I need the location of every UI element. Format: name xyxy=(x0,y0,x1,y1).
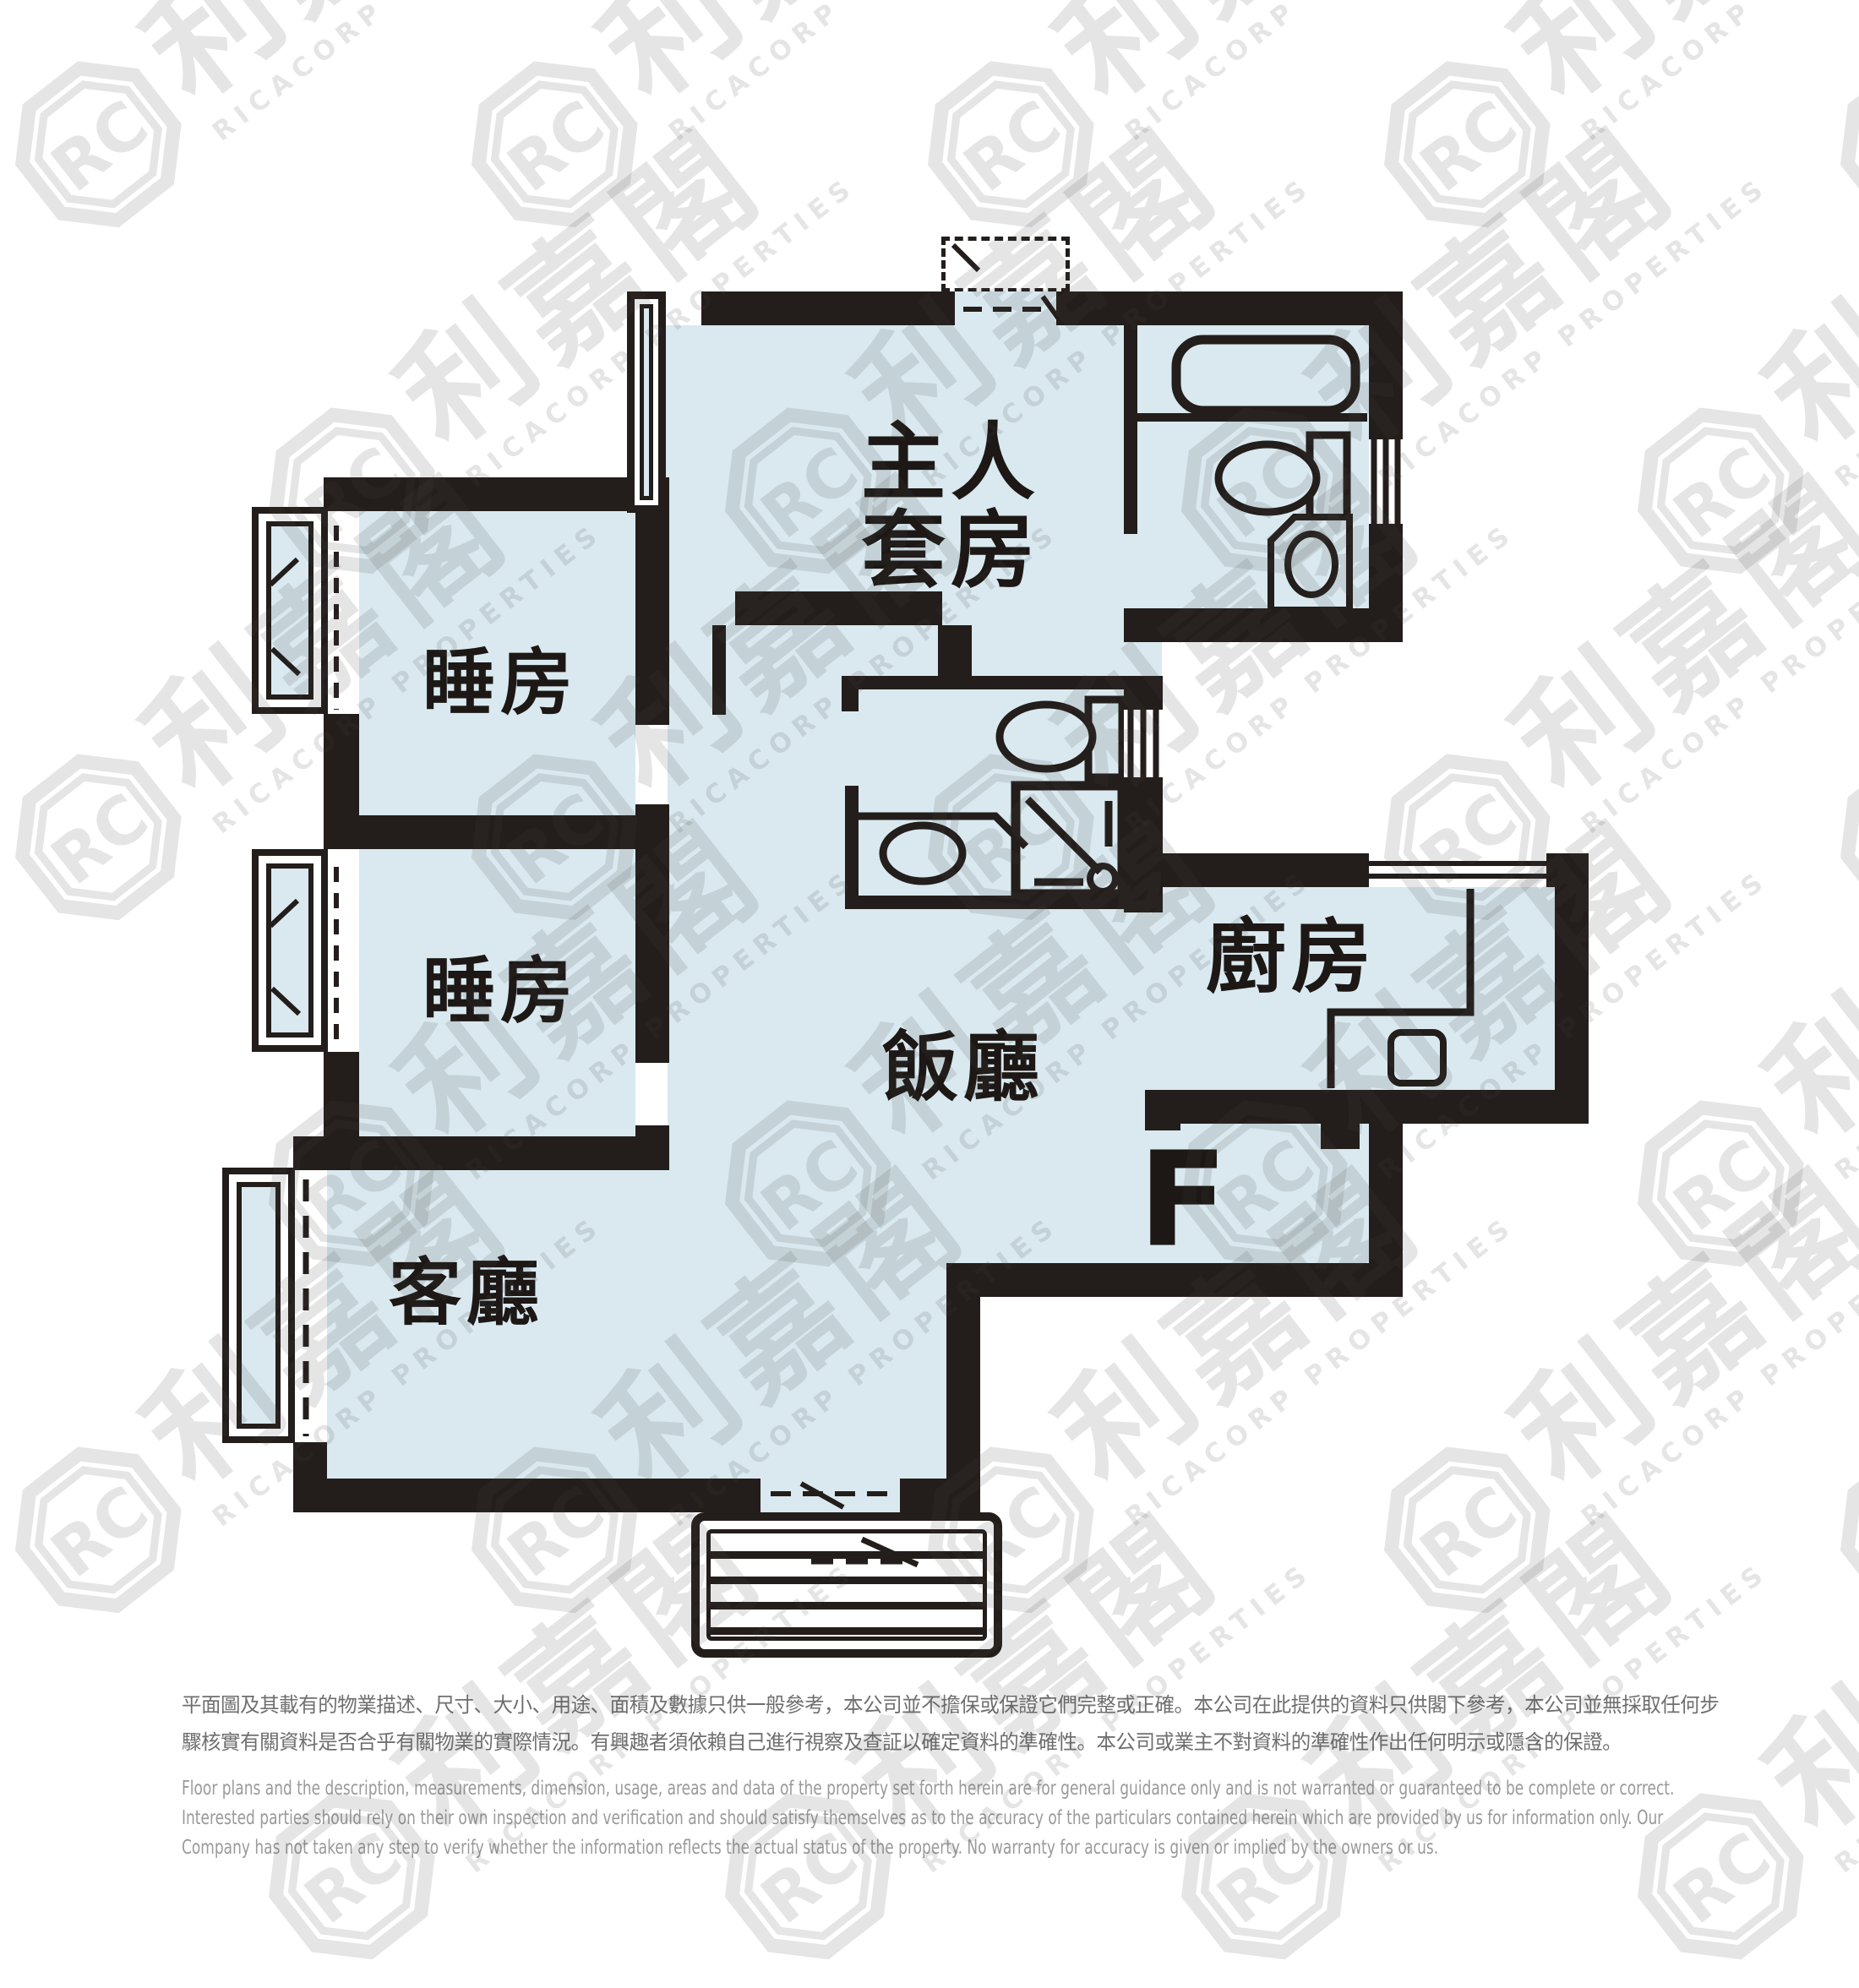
watermark-chinese: 利嘉閣 xyxy=(126,0,587,119)
disclaimer-zh-line1: 平面圖及其載有的物業描述、尺寸、大小、用途、面積及數據只供一般參考，本公司並不擔… xyxy=(182,1686,1859,1724)
watermark-tile: RC利嘉閣RICACORP PROPERTIES xyxy=(1609,760,1859,1295)
svg-text:RC: RC xyxy=(1406,779,1530,900)
wall-segment xyxy=(845,786,859,909)
watermark-tile: RC利嘉閣RICACORP PROPERTIES xyxy=(1355,413,1859,949)
ricacorp-logo-icon: RC xyxy=(0,1420,208,1640)
wall-segment xyxy=(845,676,1162,689)
svg-text:RC: RC xyxy=(1406,86,1530,207)
watermark-text: 利嘉閣RICACORP PROPERTIES xyxy=(126,0,608,147)
top-window-gap xyxy=(955,291,1056,325)
wall-segment xyxy=(324,477,669,511)
wall-segment xyxy=(1124,777,1163,912)
ricacorp-logo-icon: RC xyxy=(1357,35,1577,254)
slab-edge-inner xyxy=(640,304,653,500)
room-label-dining: 飯廳 xyxy=(882,1005,1044,1115)
bay-window-glass xyxy=(266,863,313,1038)
ricacorp-logo-icon: RC xyxy=(1611,381,1830,601)
wall-segment xyxy=(845,896,1126,909)
floor-plan: 主人 套房 睡房 睡房 客廳 飯廳 廚房 F RC利嘉閣RICACORP PRO… xyxy=(0,0,1859,1859)
wall-segment xyxy=(1124,325,1137,524)
watermark-english: RICACORP PROPERTIES xyxy=(1829,863,1859,1186)
watermark-text: 利嘉閣RICACORP PROPERTIES xyxy=(1748,760,1859,1186)
watermark-text: 利嘉閣RICACORP PROPERTIES xyxy=(1039,0,1521,147)
wall-segment xyxy=(635,815,669,1052)
ricacorp-logo-icon: RC xyxy=(1813,727,1859,947)
bay-window-bedroom2 xyxy=(252,849,328,1052)
watermark-tile: RC利嘉閣RICACORP PROPERTIES xyxy=(0,0,608,256)
ricacorp-logo-icon: RC xyxy=(901,35,1120,254)
window-icon xyxy=(1369,439,1403,524)
ricacorp-logo-icon: RC xyxy=(1357,1420,1577,1640)
disclaimer-en-line2: Interested parties should rely on their … xyxy=(182,1804,1674,1833)
watermark-english: RICACORP PROPERTIES xyxy=(1576,0,1859,147)
svg-text:RC: RC xyxy=(1660,1125,1784,1246)
watermark-tile: RC利嘉閣RICACORP PROPERTIES xyxy=(1812,0,1859,256)
watermark-english: RICACORP PROPERTIES xyxy=(1576,1210,1859,1533)
wall-segment xyxy=(1179,1090,1589,1124)
watermark-tile: RC利嘉閣RICACORP PROPERTIES xyxy=(443,0,1065,256)
disclaimer-en-line1: Floor plans and the description, measure… xyxy=(182,1774,1674,1804)
bay-window-glass xyxy=(266,521,313,700)
room-label-bedroom1: 睡房 xyxy=(422,624,578,729)
watermark-tile: RC利嘉閣RICACORP PROPERTIES xyxy=(1355,1106,1859,1642)
watermark-chinese: 利嘉閣 xyxy=(1748,760,1859,1158)
watermark-tile: RC利嘉閣RICACORP PROPERTIES xyxy=(899,0,1521,256)
watermark-tile: RC利嘉閣RICACORP PROPERTIES xyxy=(1355,0,1859,256)
wall-segment xyxy=(1555,853,1589,1124)
wall-segment xyxy=(946,1297,980,1512)
watermark-chinese: 利嘉閣 xyxy=(1039,0,1500,119)
svg-text:RC: RC xyxy=(1406,1472,1530,1593)
watermark-tile: RC利嘉閣RICACORP PROPERTIES xyxy=(1609,67,1859,602)
watermark-english: RICACORP PROPERTIES xyxy=(663,0,1065,147)
watermark-chinese: 利嘉閣 xyxy=(1495,1106,1859,1505)
door-jamb xyxy=(635,714,669,725)
unit-letter: F xyxy=(1138,1124,1228,1277)
bay-window-living xyxy=(222,1168,295,1443)
wall-segment xyxy=(293,1479,760,1512)
ricacorp-logo-icon: RC xyxy=(1813,1420,1859,1640)
bay-window-glass xyxy=(237,1182,281,1429)
room-label-bedroom2: 睡房 xyxy=(422,932,578,1038)
master-suite-line1: 主人 xyxy=(861,419,1040,507)
watermark-english: RICACORP PROPERTIES xyxy=(207,0,608,147)
watermark-english: RICACORP PROPERTIES xyxy=(1576,517,1859,840)
wall-segment xyxy=(1369,291,1403,439)
wall-segment xyxy=(635,477,669,714)
ricacorp-logo-icon: RC xyxy=(1611,1074,1830,1294)
door-jamb xyxy=(635,1125,669,1136)
disclaimer-zh-line2: 驟核實有關資料是否合乎有關物業的實際情況。有興趣者須依賴自己進行視察及查証以確定… xyxy=(182,1724,1859,1761)
master-suite-line2: 套房 xyxy=(861,507,1040,595)
bay-window-bedroom1 xyxy=(252,507,328,714)
watermark-chinese: 利嘉閣 xyxy=(582,0,1044,119)
watermark-text: 利嘉閣RICACORP PROPERTIES xyxy=(1495,1106,1859,1533)
watermark-chinese: 利嘉閣 xyxy=(1495,0,1859,119)
svg-text:RC: RC xyxy=(37,779,161,900)
svg-text:RC: RC xyxy=(493,86,618,207)
wall-segment xyxy=(1145,853,1369,887)
disclaimer: 平面圖及其載有的物業描述、尺寸、大小、用途、面積及數據只供一般參考，本公司並不擔… xyxy=(182,1686,1859,1863)
watermark-english: RICACORP PROPERTIES xyxy=(1373,171,1774,493)
room-label-living: 客廳 xyxy=(389,1234,544,1339)
bottom-window-gap xyxy=(760,1479,900,1512)
watermark-chinese: 利嘉閣 xyxy=(1495,413,1859,812)
ricacorp-logo-icon: RC xyxy=(0,35,208,254)
wall-segment xyxy=(293,1136,669,1170)
room-label-kitchen: 廚房 xyxy=(1206,893,1377,1009)
ricacorp-logo-icon: RC xyxy=(1813,35,1859,254)
door-jamb xyxy=(635,1052,669,1063)
watermark-text: 利嘉閣RICACORP PROPERTIES xyxy=(1495,0,1859,147)
svg-text:RC: RC xyxy=(1660,433,1784,553)
wall-segment xyxy=(1056,291,1403,325)
watermark-tile: RC利嘉閣RICACORP PROPERTIES xyxy=(1812,1106,1859,1642)
door-jamb xyxy=(842,676,859,711)
wall-segment xyxy=(324,815,669,849)
ac-platform-top xyxy=(941,237,1070,292)
wall-segment xyxy=(1321,1124,1360,1149)
louver-slats xyxy=(706,1529,987,1641)
watermark-text: 利嘉閣RICACORP PROPERTIES xyxy=(582,0,1065,147)
svg-text:RC: RC xyxy=(37,86,161,207)
ac-louver-platform xyxy=(691,1512,1002,1658)
watermark-text: 利嘉閣RICACORP PROPERTIES xyxy=(1748,67,1859,493)
ricacorp-logo-icon: RC xyxy=(444,35,664,254)
slab-edge xyxy=(627,291,666,513)
wall-segment xyxy=(1124,676,1163,710)
wall-segment xyxy=(324,714,359,815)
window-icon xyxy=(1369,853,1546,887)
wall-segment xyxy=(324,1052,359,1136)
wall-segment xyxy=(701,291,955,325)
svg-text:RC: RC xyxy=(37,1472,161,1593)
room-label-master-suite: 主人 套房 xyxy=(861,419,1040,595)
wall-segment xyxy=(712,625,726,715)
door-jamb xyxy=(1124,524,1137,534)
ricacorp-logo-icon: RC xyxy=(0,727,208,947)
svg-text:RC: RC xyxy=(950,86,1074,207)
watermark-chinese: 利嘉閣 xyxy=(1748,67,1859,466)
wall-segment xyxy=(1124,608,1403,642)
watermark-tile: RC利嘉閣RICACORP PROPERTIES xyxy=(1812,413,1859,949)
watermark-english: RICACORP PROPERTIES xyxy=(1829,171,1859,493)
door-jamb xyxy=(635,804,669,815)
watermark-text: 利嘉閣RICACORP PROPERTIES xyxy=(1495,413,1859,840)
watermark-english: RICACORP PROPERTIES xyxy=(1120,0,1521,147)
